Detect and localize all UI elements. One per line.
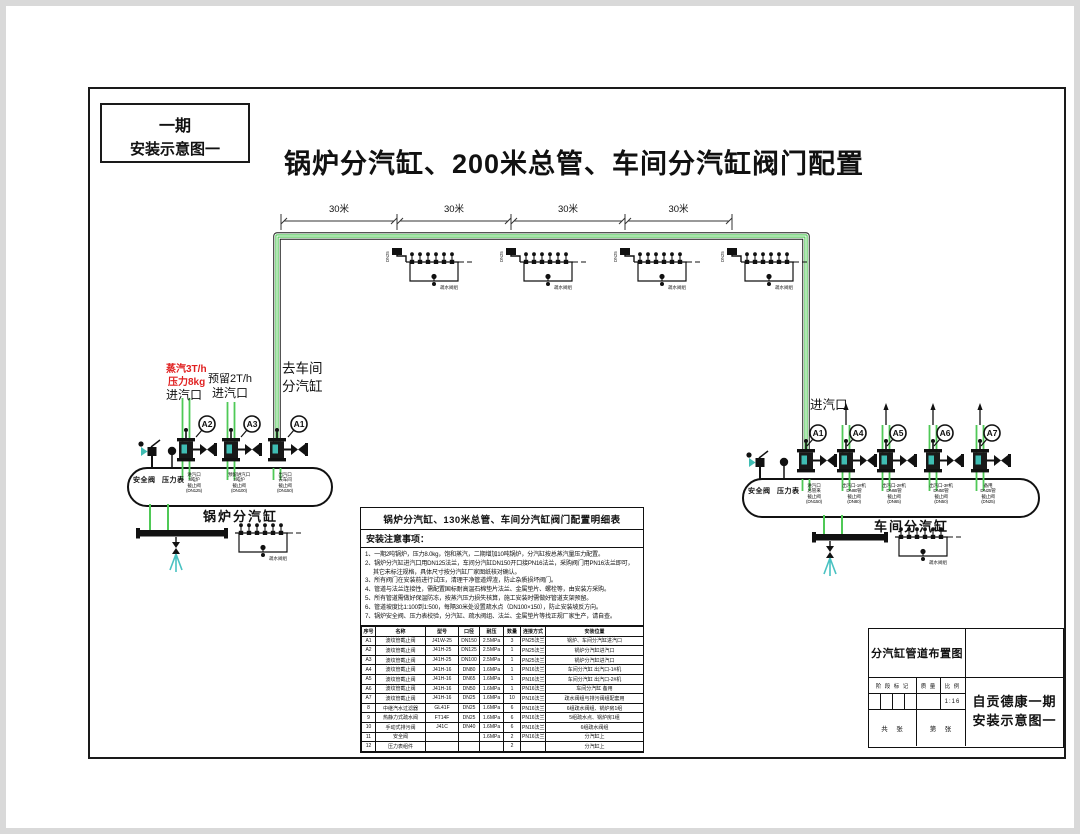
flow-arrow-icon (977, 403, 982, 425)
installation-note: 4、管道与法兰连接性，需配置国标耐高温石棉垫片法兰、金属垫片、螺栓等，由安装方采… (365, 586, 639, 595)
installation-note: 3、所有阀门在安装前进行试压，清理干净管道焊渣，防止杂质损坏阀门。 (365, 577, 639, 586)
schedule-cell: 6 (504, 703, 521, 713)
trap-assembly-label: 疏水阀组 (668, 284, 686, 291)
to-workshop-line1: 去车间 (282, 357, 323, 377)
schedule-cell: 1.6MPa (480, 703, 504, 713)
schedule-cell: 波纹管截止阀 (376, 646, 426, 656)
schedule-cell: PN16法兰 (521, 665, 546, 675)
schedule-row: 8中继汽水过滤器GL41FDN251.6MPa6PN16法兰6组疏水阀组、锅炉房… (362, 703, 644, 713)
schedule-cell: PN16法兰 (521, 703, 546, 713)
schedule-cell: DN100 (459, 655, 480, 665)
schedule-cell: 1.6MPa (480, 665, 504, 675)
schedule-cell: 2.5MPa (480, 655, 504, 665)
schedule-cell: PN16法兰 (521, 732, 546, 742)
installation-note: 6、管道坡度比1:100到1:500，每隔30米处设置疏水点（DN100×150… (365, 604, 639, 613)
scale-label: 比 例 (941, 678, 964, 693)
schedule-cell: 车间分汽缸 出汽口-2#机 (546, 674, 644, 684)
schedule-cell: PN16法兰 (521, 713, 546, 723)
schedule-cell: 压力表组件 (376, 742, 426, 752)
trap-assembly-label: 疏水阀组 (929, 559, 947, 566)
schedule-cell: DN80 (459, 665, 480, 675)
tap-dn-label: DN25 (720, 251, 725, 262)
schedule-cell: FT14F (426, 713, 459, 723)
schedule-cell: 波纹管截止阀 (376, 655, 426, 665)
valve-tag-text: A6 (940, 428, 951, 438)
schedule-header: 连接方式 (521, 627, 546, 637)
schedule-cell: J41H-25 (426, 655, 459, 665)
schedule-cell: PN16法兰 (521, 684, 546, 694)
blowdown-valve-icon (824, 541, 836, 576)
title-block: 分汽缸管道布置图 阶 段 标 记 质 量 比 例 1:16 (868, 628, 1064, 748)
schedule-cell: 1 (504, 684, 521, 694)
schedule-cell: 波纹管截止阀 (376, 694, 426, 704)
schedule-cell (521, 742, 546, 752)
to-workshop-line2: 分汽缸 (282, 375, 323, 395)
schedule-cell: J41W-25 (426, 636, 459, 646)
schedule-cell: 1.6MPa (480, 674, 504, 684)
boiler-inlet1-label: 进汽口 (166, 386, 202, 403)
workshop-nozzle-text: 备用DN25管截止阀(DN25) (965, 483, 1011, 504)
valve-tag-text: A7 (987, 428, 998, 438)
schedule-cell: PN16法兰 (521, 674, 546, 684)
schedule-cell: 8 (362, 703, 376, 713)
schedule-row: 12压力表组件2分汽缸上 (362, 742, 644, 752)
schedule-cell: J41C (426, 722, 459, 732)
steam-trap-assembly: 疏水阀组 (620, 248, 702, 291)
trap-assembly-label: 疏水阀组 (775, 284, 793, 291)
schedule-cell: J41H-16 (426, 665, 459, 675)
schedule-cell: A4 (362, 665, 376, 675)
safety-valve-label: 安全阀 (748, 488, 771, 495)
schedule-cell (480, 742, 504, 752)
dimension-label: 30米 (558, 203, 579, 215)
schedule-header: 数量 (504, 627, 521, 637)
pressure-gauge-icon (168, 447, 176, 468)
schedule-cell: 2 (504, 732, 521, 742)
schedule-cell: 3 (504, 636, 521, 646)
schedule-cell: DN25 (459, 703, 480, 713)
project-line2: 安装示意图一 (972, 712, 1056, 731)
installation-note: 5、所有管道需做好保温防冻，按蒸汽压力损失核算，施工安装时需做好管道支架预留。 (365, 595, 639, 604)
schedule-cell: 1.6MPa (480, 694, 504, 704)
valve-tag-text: A5 (893, 428, 904, 438)
schedule-cell: A5 (362, 674, 376, 684)
valve-tag-text: A2 (202, 419, 213, 429)
schedule-row: A5波纹管截止阀J41H-16DN651.6MPa1PN16法兰车间分汽缸 出汽… (362, 674, 644, 684)
schedule-cell: J41H-25 (426, 646, 459, 656)
installation-note: 1、一期2吨锅炉，压力8.0kg，饱和蒸汽，二期增加10吨锅炉，分汽缸按总蒸汽量… (365, 551, 639, 560)
trap-assembly-label: 疏水阀组 (269, 555, 287, 562)
valve-tag-circle: A3 (241, 416, 260, 437)
pressure-gauge-icon (780, 458, 788, 479)
schedule-cell (459, 732, 480, 742)
trap-assembly-label: 疏水阀组 (554, 284, 572, 291)
schedule-cell: 车间分汽缸 备用 (546, 684, 644, 694)
schedule-cell: 2 (504, 742, 521, 752)
schedule-cell: 1 (504, 674, 521, 684)
schedule-row: 11安全阀1.6MPa2PN16法兰分汽缸上 (362, 732, 644, 742)
schedule-cell: 2.5MPa (480, 636, 504, 646)
pipe-main (277, 236, 806, 452)
schedule-header: 耐压 (480, 627, 504, 637)
schedule-row: 10手动式排污阀J41CDN401.6MPa6PN16法兰6组疏水阀组 (362, 722, 644, 732)
boiler-inlet2-line2: 进汽口 (212, 384, 248, 401)
scale-value: 1:16 (941, 694, 964, 709)
installation-note: 7、锅炉安全阀、压力表校验，分汽缸、疏水阀组、法兰、金属垫片等找正规厂家生产，请… (365, 613, 639, 622)
dimension-label: 30米 (668, 203, 689, 215)
drawing-page: 一期 安装示意图一 锅炉分汽缸、200米总管、车间分汽缸阀门配置 30米30米3… (0, 0, 1080, 834)
schedule-cell: 11 (362, 732, 376, 742)
installation-note: 2、锅炉分汽缸进汽口用DN125法兰，车间分汽缸DN150开口接PN16法兰，采… (365, 560, 639, 578)
schedule-cell: 1.6MPa (480, 713, 504, 723)
schedule-cell: 6 (504, 722, 521, 732)
schedule-cell: DN125 (459, 646, 480, 656)
valve-tag-circle: A1 (807, 425, 826, 446)
dimension-lines (281, 214, 732, 230)
valve-tag-circle: A1 (288, 416, 307, 437)
schedule-row: 9热静力式疏水阀FT14FDN251.6MPa6PN16法兰5组疏水点、锅炉房1… (362, 713, 644, 723)
sheet-total: 共 张 (869, 710, 917, 746)
schedule-cell: 手动式排污阀 (376, 722, 426, 732)
project-name: 自贡德康一期 安装示意图一 (966, 678, 1063, 746)
schedule-cell: PN25法兰 (521, 636, 546, 646)
schedule-cell: 1.6MPa (480, 732, 504, 742)
schedule-cell: 分汽缸上 (546, 732, 644, 742)
boiler-nozzle-text: 进汽口3吨炉截止阀(DN125) (173, 472, 215, 493)
trap-assembly-label: 疏水阀组 (440, 284, 458, 291)
schedule-cell: 6组疏水阀组 (546, 722, 644, 732)
schedule-cell: DN150 (459, 636, 480, 646)
schedule-cell: J41H-16 (426, 674, 459, 684)
schedule-cell: 波纹管截止阀 (376, 636, 426, 646)
flow-arrow-icon (930, 403, 935, 425)
schedule-cell: PN25法兰 (521, 646, 546, 656)
safety-valve-label: 安全阀 (133, 477, 156, 484)
schedule-cell: 1 (504, 646, 521, 656)
schedule-cell: 9 (362, 713, 376, 723)
valve-tag-text: A1 (813, 428, 824, 438)
tap-dn-label: DN25 (499, 251, 504, 262)
schedule-row: A3波纹管截止阀J41H-25DN1002.5MPa1PN25法兰锅炉分汽缸进汽… (362, 655, 644, 665)
schedule-cell: 热静力式疏水阀 (376, 713, 426, 723)
boiler-nozzle-text: 预留进汽口2吨炉截止阀(DN100) (218, 472, 260, 493)
schedule-header: 安装位置 (546, 627, 644, 637)
schedule-cell: 中继汽水过滤器 (376, 703, 426, 713)
schedule-cell: PN16法兰 (521, 722, 546, 732)
safety-valve-icon (138, 440, 160, 468)
schedule-cell: J41H-16 (426, 684, 459, 694)
schedule-header: 名称 (376, 627, 426, 637)
valve-schedule-table: 序号名称型号口径耐压数量连接方式安装位置A1波纹管截止阀J41W-25DN150… (361, 626, 644, 752)
schedule-cell: A2 (362, 646, 376, 656)
schedule-cell: DN40 (459, 722, 480, 732)
schedule-cell: 2.5MPa (480, 646, 504, 656)
schedule-row: A6波纹管截止阀J41H-16DN501.6MPa1PN16法兰车间分汽缸 备用 (362, 684, 644, 694)
schedule-cell: 分汽缸上 (546, 742, 644, 752)
tap-dn-label: DN25 (613, 251, 618, 262)
schedule-cell (426, 742, 459, 752)
mass-label: 质 量 (917, 678, 941, 693)
schedule-cell: 6组疏水阀组、锅炉房1组 (546, 703, 644, 713)
tap-dn-label: DN25 (385, 251, 390, 262)
schedule-cell: 车间分汽缸 出汽口-1#机 (546, 665, 644, 675)
steam-trap-assembly: 疏水阀组 (727, 248, 809, 291)
schedule-cell: 疏水阀组与排污阀组配套用 (546, 694, 644, 704)
schedule-cell: 锅炉分汽缸进汽口 (546, 655, 644, 665)
stage-mark-box (881, 694, 893, 709)
steam-trap-assembly: 疏水阀组 (506, 248, 588, 291)
schedule-cell: A7 (362, 694, 376, 704)
safety-valve-icon (746, 451, 768, 479)
stage-mark-box (893, 694, 905, 709)
notes-and-schedule-table: 锅炉分汽缸、130米总管、车间分汽缸阀门配置明细表 安装注意事项： 1、一期2吨… (360, 507, 644, 753)
mass-value-box (917, 694, 941, 709)
schedule-cell: 1.6MPa (480, 722, 504, 732)
stage-mark-label: 阶 段 标 记 (869, 678, 917, 693)
schedule-cell (426, 732, 459, 742)
steam-trap-assembly: 疏水阀组 (392, 248, 474, 291)
valve-tag-text: A3 (247, 419, 258, 429)
schedule-row: A2波纹管截止阀J41H-25DN1252.5MPa1PN25法兰锅炉分汽缸进汽… (362, 646, 644, 656)
dimension-label: 30米 (329, 203, 350, 215)
table-title: 锅炉分汽缸、130米总管、车间分汽缸阀门配置明细表 (361, 508, 643, 530)
schedule-cell: 1 (504, 655, 521, 665)
blowdown-valve-icon (170, 537, 182, 572)
schedule-cell: DN50 (459, 684, 480, 694)
schedule-cell: PN25法兰 (521, 655, 546, 665)
schedule-cell: 1.6MPa (480, 684, 504, 694)
schedule-cell: 10 (362, 722, 376, 732)
schedule-cell: A1 (362, 636, 376, 646)
schedule-cell (459, 742, 480, 752)
drawing-name: 分汽缸管道布置图 (869, 629, 966, 677)
schedule-cell: 安全阀 (376, 732, 426, 742)
stage-mark-box (905, 694, 917, 709)
schedule-cell: DN65 (459, 674, 480, 684)
schedule-cell: 1 (504, 665, 521, 675)
schedule-cell: J41H-16 (426, 694, 459, 704)
schedule-cell: 波纹管截止阀 (376, 684, 426, 694)
schedule-row: A7波纹管截止阀J41H-16DN251.6MPa10PN16法兰疏水阀组与排污… (362, 694, 644, 704)
flow-arrow-icon (883, 403, 888, 425)
schedule-header: 序号 (362, 627, 376, 637)
schedule-cell: PN16法兰 (521, 694, 546, 704)
title-block-empty-cell (966, 629, 1063, 677)
schedule-header: 口径 (459, 627, 480, 637)
schedule-cell: 波纹管截止阀 (376, 665, 426, 675)
schedule-cell: A6 (362, 684, 376, 694)
schedule-cell: 10 (504, 694, 521, 704)
boiler-nozzle-text: 出汽口去车间截止阀(DN150) (264, 472, 306, 493)
schedule-cell: GL41F (426, 703, 459, 713)
workshop-nozzle-text: 出汽口-3#机DN50管截止阀(DN50) (918, 483, 964, 504)
schedule-cell: 6 (504, 713, 521, 723)
schedule-cell: DN25 (459, 713, 480, 723)
schedule-row: A4波纹管截止阀J41H-16DN801.6MPa1PN16法兰车间分汽缸 出汽… (362, 665, 644, 675)
sheet-number: 第 张 (917, 710, 965, 746)
stage-mark-box (869, 694, 881, 709)
schedule-cell: 锅炉、车间分汽缸进汽口 (546, 636, 644, 646)
valve-tag-text: A4 (853, 428, 864, 438)
steam-trap-assembly: 疏水阀组 (235, 523, 303, 562)
project-line1: 自贡德康一期 (972, 693, 1056, 712)
workshop-nozzle-text: 出汽口-2#机DN65管截止阀(DN65) (871, 483, 917, 504)
schedule-header: 型号 (426, 627, 459, 637)
schedule-cell: A3 (362, 655, 376, 665)
schedule-cell: 5组疏水点、锅炉房1组 (546, 713, 644, 723)
schedule-row: A1波纹管截止阀J41W-25DN1502.5MPa3PN25法兰锅炉、车间分汽… (362, 636, 644, 646)
workshop-drum-label: 车间分汽缸 (874, 516, 949, 535)
schedule-cell: 12 (362, 742, 376, 752)
notes-header: 安装注意事项： (361, 530, 643, 548)
valve-tag-text: A1 (294, 419, 305, 429)
workshop-inlet-label: 进汽口 (810, 394, 848, 413)
schedule-cell: DN25 (459, 694, 480, 704)
dimension-label: 30米 (444, 203, 465, 215)
boiler-drum-label: 锅炉分汽缸 (203, 506, 278, 525)
schedule-cell: 锅炉分汽缸进汽口 (546, 646, 644, 656)
installation-notes: 1、一期2吨锅炉，压力8.0kg，饱和蒸汽，二期增加10吨锅炉，分汽缸按总蒸汽量… (361, 548, 643, 626)
valve-tag-circle: A2 (196, 416, 215, 437)
schedule-cell: 波纹管截止阀 (376, 674, 426, 684)
